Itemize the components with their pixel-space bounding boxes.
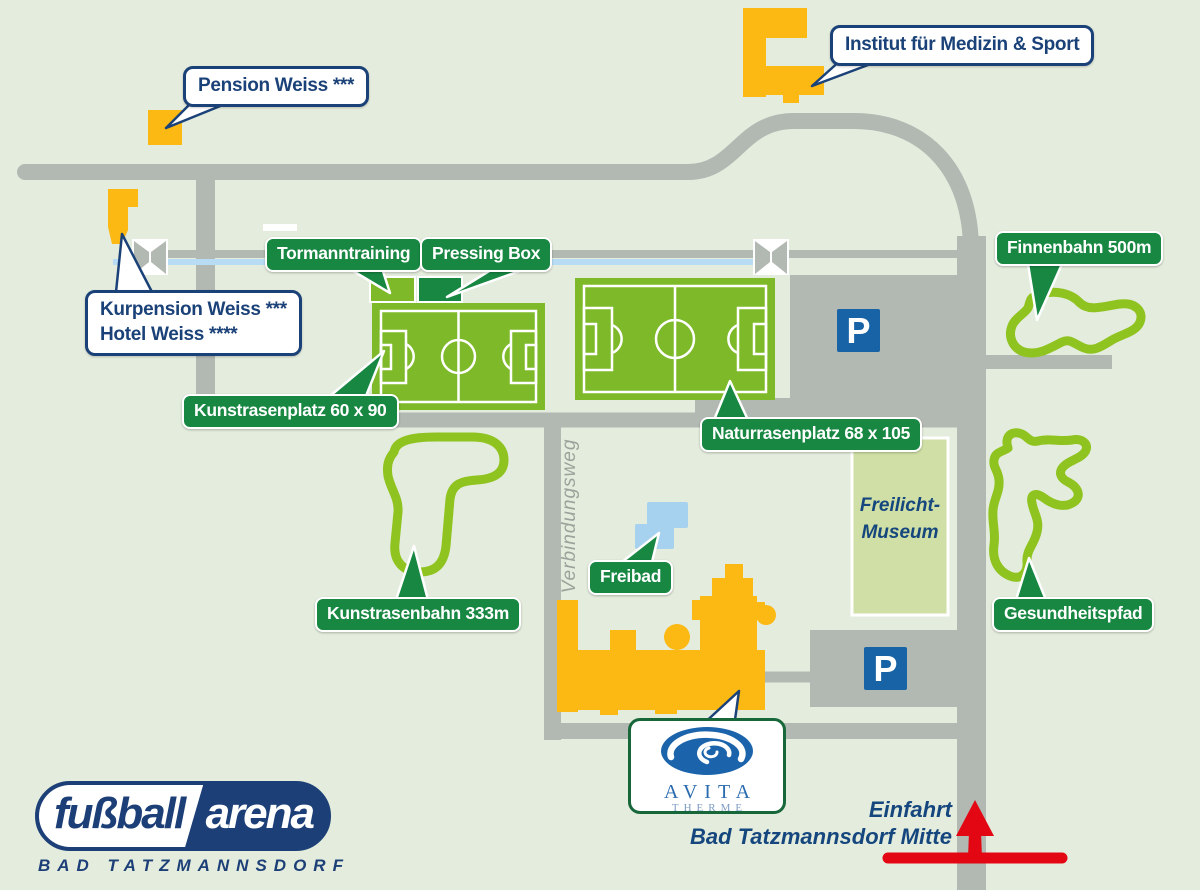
- map-base-layer: [0, 0, 1200, 890]
- label-kurpension: Kurpension Weiss *** Hotel Weiss ****: [85, 290, 302, 356]
- kurpension-line2: Hotel Weiss ****: [100, 322, 287, 347]
- label-pension-weiss: Pension Weiss ***: [183, 66, 369, 107]
- logo-word-fussball: fußball: [54, 789, 184, 839]
- pitch-kunstrasenplatz: [372, 303, 545, 410]
- parking-icon-2: P: [864, 647, 907, 690]
- label-finnenbahn: Finnenbahn 500m: [995, 231, 1163, 266]
- avita-name: AVITA: [631, 782, 783, 802]
- building-institut: [743, 8, 824, 103]
- trail-gesundheitspfad: [993, 433, 1087, 577]
- verbindungsweg-label: Verbindungsweg: [559, 439, 581, 594]
- label-kunstrasenbahn: Kunstrasenbahn 333m: [315, 597, 521, 632]
- trail-kunstrasenbahn: [387, 437, 504, 572]
- pitch-naturrasenplatz: [575, 278, 775, 400]
- label-pressing-box: Pressing Box: [420, 237, 552, 272]
- logo-subtitle: BAD TATZMANNSDORF: [38, 856, 350, 876]
- site-map: P P Tormanntraining Pressing Box Kunstra…: [0, 0, 1200, 890]
- label-institut: Institut für Medizin & Sport: [830, 25, 1094, 66]
- fussballarena-logo: fußball arena: [35, 781, 331, 851]
- kurpension-line1: Kurpension Weiss ***: [100, 297, 287, 322]
- parking-icon-1: P: [837, 309, 880, 352]
- museum-label: Freilicht- Museum: [852, 492, 948, 546]
- label-gesundheitspfad: Gesundheitspfad: [992, 597, 1154, 632]
- freibad-pool: [635, 502, 688, 549]
- museum-line2: Museum: [852, 519, 948, 546]
- avita-spiral-icon: [657, 726, 757, 776]
- avita-subtitle: THERME: [631, 802, 783, 814]
- logo-word-arena: arena: [206, 789, 313, 839]
- map-white-dash: [263, 224, 297, 231]
- label-kunstrasenplatz: Kunstrasenplatz 60 x 90: [182, 394, 399, 429]
- label-freibad: Freibad: [588, 560, 673, 595]
- entry-line2: Bad Tatzmannsdorf Mitte: [600, 823, 952, 850]
- avita-therme-card: AVITA THERME: [628, 718, 786, 814]
- trail-finnenbahn: [1011, 292, 1142, 353]
- label-naturrasenplatz: Naturrasenplatz 68 x 105: [700, 417, 922, 452]
- museum-line1: Freilicht-: [852, 492, 948, 519]
- pressing-box-area: [418, 277, 462, 302]
- label-tormanntraining: Tormanntraining: [265, 237, 422, 272]
